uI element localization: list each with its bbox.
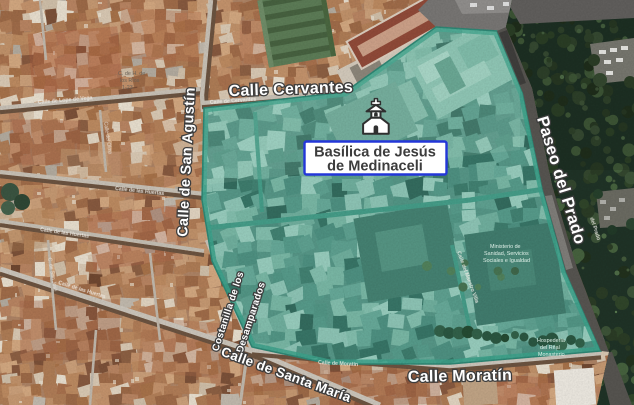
- svg-text:1-23: 1-23: [122, 85, 133, 91]
- svg-text:de Medinaceli: de Medinaceli: [327, 159, 423, 175]
- svg-text:Sanidad, Servicios: Sanidad, Servicios: [484, 251, 529, 257]
- svg-text:Calle Moratín: Calle Moratín: [408, 367, 513, 386]
- svg-text:Sociales e Igualdad: Sociales e Igualdad: [483, 258, 530, 264]
- svg-text:del Real: del Real: [540, 345, 560, 351]
- svg-text:Hospedería: Hospedería: [537, 338, 565, 344]
- svg-text:los Ríos: los Ríos: [120, 78, 140, 84]
- svg-text:C. de H. de: C. de H. de: [118, 71, 145, 77]
- svg-text:Monasterio: Monasterio: [538, 352, 565, 358]
- svg-text:Ministerio de: Ministerio de: [490, 244, 521, 250]
